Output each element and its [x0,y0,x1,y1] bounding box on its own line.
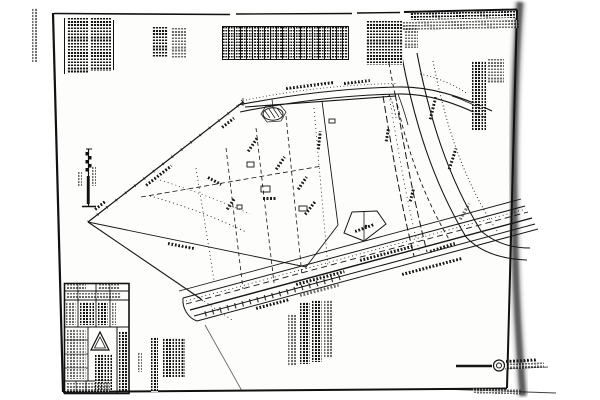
seal-icon [494,360,505,371]
dedication-block [366,21,403,65]
legend-rotated-col4 [324,300,333,358]
title-block-left-cells [67,329,86,379]
scale-tick-text-left [78,171,82,186]
scanned-document-canvas [0,0,600,400]
title-block-cell [98,284,120,290]
sheet-title-vertical-2 [138,352,142,372]
title-block-cell [66,302,76,325]
sheet-title-vertical [151,337,158,392]
title-block-right-column [119,331,127,391]
rotated-note-block [163,338,185,377]
title-block-bottom-row [66,383,110,392]
side-notes-col2 [171,28,186,58]
title-block-cell [98,302,108,325]
legend-rotated-col3 [312,300,322,362]
margin-note [32,8,37,62]
legend-rotated-col2 [300,302,310,364]
scale-tick-text-right [92,166,96,186]
notes-block-col1 [67,18,88,74]
engineer-triangle-logo-icon [91,332,109,350]
title-block-cell [112,302,116,325]
lot-boundaries [88,93,427,320]
curve-table [222,26,349,60]
legend-column-small [487,59,504,83]
side-notes-col1 [152,27,168,58]
title-block-cell [66,293,121,298]
notes-block-col2 [90,18,111,71]
legend-rotated-col1 [288,314,297,366]
title-block-cell [80,302,94,325]
legend-column [472,61,487,130]
site-features [199,98,386,301]
title-block-cell [66,284,86,290]
annotation [263,197,276,200]
